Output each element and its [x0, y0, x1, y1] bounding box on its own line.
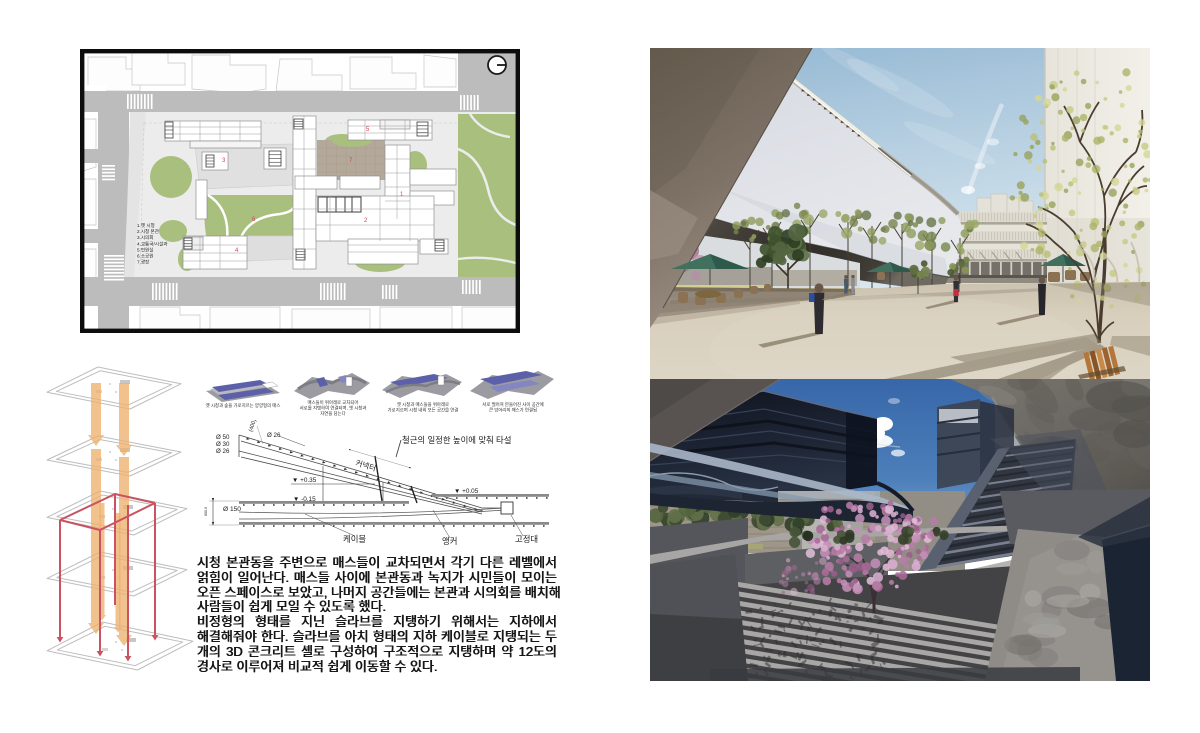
- svg-text:Ø 30: Ø 30: [216, 441, 230, 448]
- svg-text:철근의 일정한 높이에 맞춰 타설: 철근의 일정한 높이에 맞춰 타설: [402, 435, 511, 445]
- svg-text:케이블: 케이블: [343, 534, 366, 544]
- svg-text:▼ +0.05: ▼ +0.05: [454, 488, 479, 495]
- svg-text:7.광장: 7.광장: [137, 259, 150, 265]
- svg-text:6.소공원: 6.소공원: [137, 253, 154, 259]
- svg-text:Ø 26: Ø 26: [216, 448, 230, 455]
- svg-text:Ø 26: Ø 26: [267, 432, 281, 439]
- svg-text:1.옛 시청: 1.옛 시청: [137, 222, 155, 229]
- svg-text:2.시청 본관: 2.시청 본관: [137, 228, 160, 234]
- svg-text:Ø 50: Ø 50: [216, 434, 230, 441]
- svg-text:▼ -0.15: ▼ -0.15: [293, 496, 316, 503]
- svg-text:(400): (400): [248, 420, 258, 433]
- svg-text:600.0: 600.0: [204, 507, 208, 516]
- svg-text:Ø 150: Ø 150: [223, 506, 241, 513]
- svg-text:5.민원실: 5.민원실: [137, 246, 154, 252]
- svg-text:옛 시청과 숲을 가로지르는 양양형의 매스: 옛 시청과 숲을 가로지르는 양양형의 매스: [206, 402, 281, 409]
- svg-text:▼ +0.35: ▼ +0.35: [292, 477, 317, 484]
- svg-text:고정대: 고정대: [515, 534, 538, 544]
- svg-text:가로지르며 시청 내외 모든 공간을 연결: 가로지르며 시청 내외 모든 공간을 연결: [388, 407, 459, 414]
- svg-text:큰 덩어리의 매스가 연결됨: 큰 덩어리의 매스가 연결됨: [489, 407, 537, 414]
- svg-text:자연을 담는다: 자연을 담는다: [320, 410, 345, 417]
- svg-text:3.시의회: 3.시의회: [137, 234, 154, 241]
- svg-text:4.교통국/시설과: 4.교통국/시설과: [137, 240, 168, 247]
